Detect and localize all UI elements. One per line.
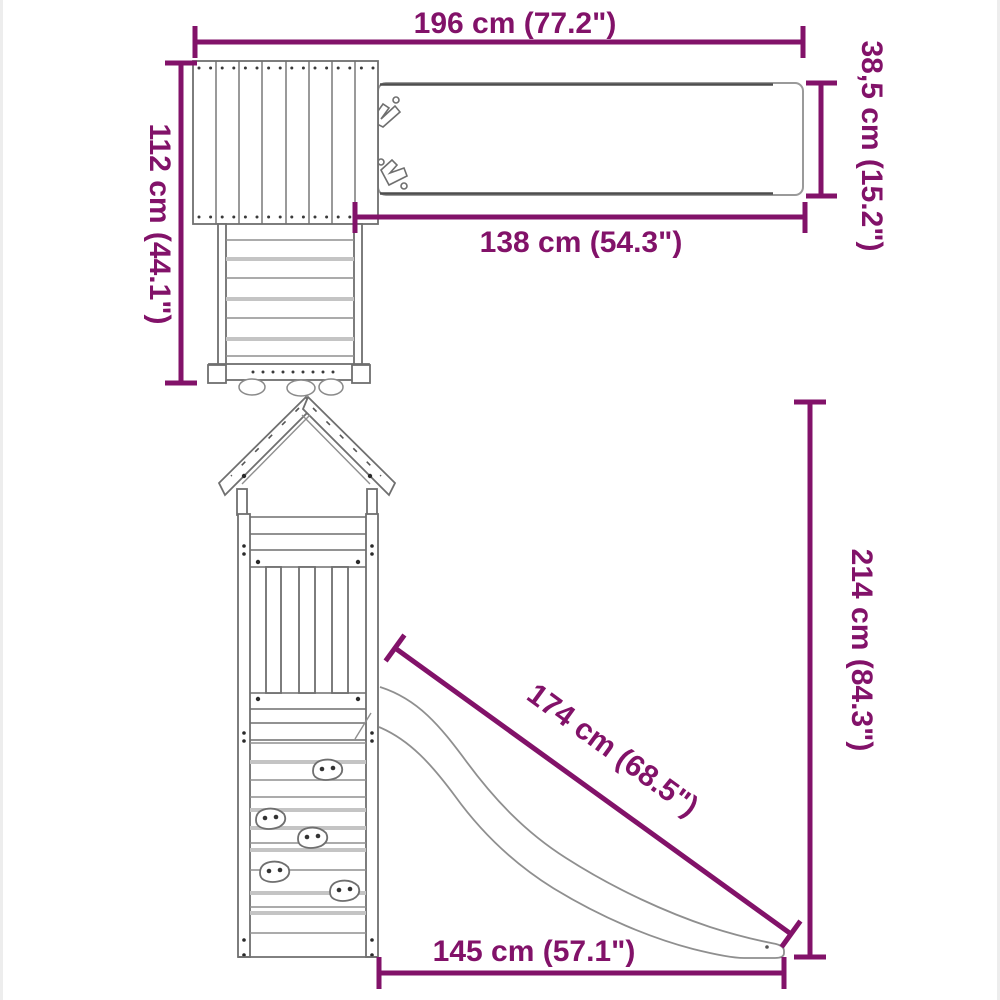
tower-post-left (238, 514, 250, 957)
dim-label-beam-height: 38,5 cm (15.2") (855, 40, 888, 251)
dim-label-slide-length: 174 cm (68.5") (521, 677, 704, 823)
dim-label-beam-length: 138 cm (54.3") (480, 226, 683, 259)
slide-lower-rail (379, 727, 744, 958)
railing-balusters (266, 567, 348, 693)
front-view-tower (238, 514, 378, 957)
dim-label-total-height: 214 cm (84.3") (845, 549, 878, 752)
top-view-roof-panel (193, 61, 378, 224)
front-view-roof (219, 397, 395, 515)
climbing-holds-front (256, 760, 359, 901)
playset-dimension-drawing: 196 cm (77.2") 112 cm (44.1") 38,5 cm (1… (3, 0, 1000, 1000)
dimension-top-width: 196 cm (77.2") (195, 7, 803, 58)
top-view-climbing-wall (208, 224, 370, 396)
dimension-beam-height: 38,5 cm (15.2") (806, 40, 888, 251)
dim-label-base-width: 145 cm (57.1") (433, 935, 636, 968)
beam-outline (378, 83, 803, 195)
dimension-total-height: 214 cm (84.3") (794, 402, 878, 957)
climbing-holds-top (239, 379, 343, 396)
dim-label-top-width: 196 cm (77.2") (414, 7, 617, 40)
climbing-wall-planks (238, 743, 378, 957)
tower-post-right (366, 514, 378, 957)
top-view-beam (371, 83, 803, 195)
front-view (219, 397, 784, 958)
dim-label-tower-depth: 112 cm (44.1") (143, 123, 176, 324)
foot-pad (208, 365, 226, 383)
foot-pad (352, 365, 370, 383)
dimension-base-width: 145 cm (57.1") (379, 935, 784, 989)
dimension-slide-length: 174 cm (68.5") (386, 635, 801, 947)
dimension-beam-length: 138 cm (54.3") (355, 202, 805, 259)
dimension-tower-depth: 112 cm (44.1") (143, 63, 197, 383)
dimension-diagram-canvas: 196 cm (77.2") 112 cm (44.1") 38,5 cm (1… (0, 0, 1000, 1000)
